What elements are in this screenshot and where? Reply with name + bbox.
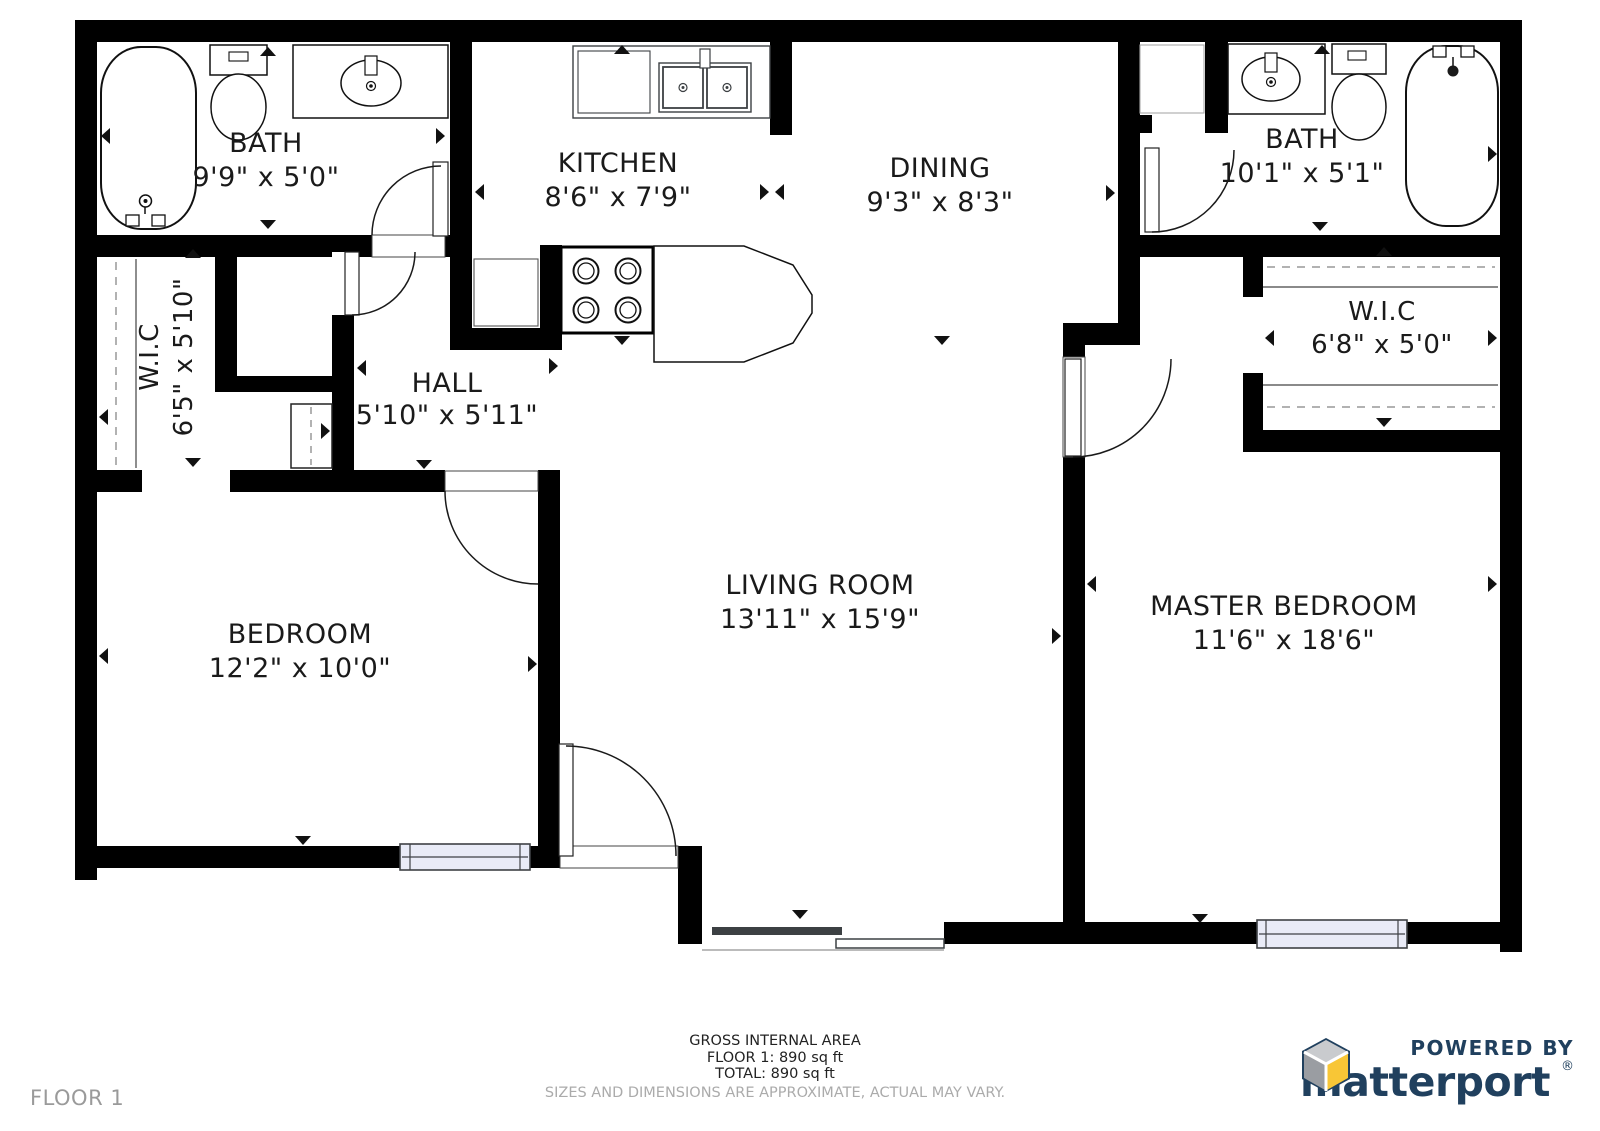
- floor-area: FLOOR 1: 890 sq ft: [475, 1050, 1075, 1067]
- wall-hall-bottom-b: [230, 470, 445, 492]
- floor-plan: BATH 9'9" x 5'0" KITCHEN 8'6" x 7'9" DIN…: [0, 0, 1600, 1131]
- room-dims-hall: 5'10" x 5'11": [356, 400, 538, 431]
- room-label-bedroom: BEDROOM: [228, 619, 372, 650]
- arrow-icon: [614, 336, 630, 345]
- floor-label: FLOOR 1: [30, 1086, 124, 1110]
- matterport-cube-icon: [1300, 1036, 1352, 1094]
- room-label-master: MASTER BEDROOM: [1150, 591, 1418, 622]
- door-hall-closet: [332, 252, 415, 315]
- arrow-icon: [1376, 418, 1392, 427]
- stove-icon: [561, 247, 653, 333]
- gross-internal-area: GROSS INTERNAL AREA FLOOR 1: 890 sq ft T…: [475, 1033, 1075, 1101]
- room-dims-master: 11'6" x 18'6": [1193, 625, 1375, 656]
- wall-vestibule-stub: [1140, 115, 1152, 133]
- sink-icon-2: [1228, 44, 1325, 114]
- wall-stove-pillar: [540, 245, 562, 350]
- disclaimer: SIZES AND DIMENSIONS ARE APPROXIMATE, AC…: [475, 1085, 1075, 1102]
- arrow-icon: [1192, 914, 1208, 923]
- powered-by-text: POWERED BY: [1410, 1036, 1574, 1060]
- arrow-icon: [760, 184, 769, 200]
- wall-hall-bottom-a: [75, 470, 142, 492]
- room-dims-bath2: 10'1" x 5'1": [1220, 158, 1385, 189]
- vestibule-closet: [1140, 45, 1204, 113]
- wall-tr-band: [1140, 235, 1500, 257]
- room-dims-wic-right: 6'8" x 5'0": [1311, 330, 1453, 360]
- wall-jog: [1063, 323, 1140, 345]
- arrow-icon: [1488, 576, 1497, 592]
- arrow-icon: [260, 220, 276, 229]
- wall-bottom-mid: [944, 922, 1257, 944]
- sink-icon: [293, 45, 448, 118]
- room-label-wic-right: W.I.C: [1348, 297, 1416, 327]
- kitchen-counter: [573, 46, 770, 118]
- wall-closet-bottom: [215, 376, 332, 392]
- arrow-icon: [528, 656, 537, 672]
- bathtub-icon: [101, 47, 196, 229]
- toilet-icon: [210, 45, 267, 140]
- room-dims-kitchen: 8'6" x 7'9": [544, 182, 691, 213]
- arrow-icon: [295, 836, 311, 845]
- wall-closet-right-b: [332, 315, 354, 470]
- room-dims-living: 13'11" x 15'9": [720, 604, 920, 635]
- window-master: [1257, 920, 1407, 948]
- wall-right: [1500, 20, 1522, 952]
- total-area: TOTAL: 890 sq ft: [475, 1066, 1075, 1083]
- arrow-icon: [934, 336, 950, 345]
- room-label-wic-left: W.I.C: [135, 323, 165, 391]
- arrow-icon: [549, 358, 558, 374]
- room-dims-dining: 9'3" x 8'3": [866, 187, 1013, 218]
- wall-kitchen-left-upper: [450, 20, 472, 257]
- arrow-icon: [185, 458, 201, 467]
- arrow-icon: [416, 460, 432, 469]
- arrow-icon: [436, 128, 445, 144]
- kitchen-pantry: [474, 259, 538, 326]
- wall-wicR-bottom: [1243, 430, 1500, 452]
- wall-closet-right-a: [332, 235, 354, 252]
- wall-left: [75, 20, 97, 880]
- room-label-dining: DINING: [889, 153, 990, 184]
- door-bath1: [372, 162, 448, 257]
- wall-bed-living-divider: [538, 470, 560, 846]
- arrow-icon: [1265, 330, 1274, 346]
- room-dims-bath1: 9'9" x 5'0": [192, 162, 339, 193]
- arrow-icon: [1087, 576, 1096, 592]
- arrow-icon: [1312, 222, 1328, 231]
- arrow-icon: [357, 360, 366, 376]
- closet-rod-wic-left: [116, 259, 136, 468]
- wall-living-master-b: [1063, 457, 1085, 930]
- room-label-kitchen: KITCHEN: [558, 148, 679, 179]
- wall-bath2-left: [1205, 42, 1228, 133]
- kitchen-peninsula: [654, 246, 812, 362]
- arrow-icon: [1106, 185, 1115, 201]
- arrow-icon: [1052, 628, 1061, 644]
- wall-wicL-right: [215, 235, 237, 392]
- registered-mark: ®: [1561, 1059, 1574, 1074]
- wall-living-master-a: [1063, 345, 1085, 357]
- arrow-icon: [792, 910, 808, 919]
- door-master: [1063, 357, 1171, 457]
- area-title: GROSS INTERNAL AREA: [475, 1033, 1075, 1050]
- sliding-door: [702, 918, 944, 950]
- hall-linen-closet: [291, 404, 332, 468]
- room-label-bath2: BATH: [1265, 124, 1339, 155]
- floorplan-page: BATH 9'9" x 5'0" KITCHEN 8'6" x 7'9" DIN…: [0, 0, 1600, 1131]
- wall-wicR-left-a: [1243, 257, 1263, 297]
- wall-kitchen-right: [770, 20, 792, 135]
- matterport-branding: POWERED BY matterport ®: [1300, 1036, 1574, 1103]
- wall-dining-right: [1118, 20, 1140, 345]
- wall-top: [75, 20, 1522, 42]
- arrow-icon: [99, 648, 108, 664]
- wall-bottom-right: [1407, 922, 1500, 944]
- room-label-living: LIVING ROOM: [725, 570, 914, 601]
- arrow-icon: [1488, 330, 1497, 346]
- door-entry: [559, 744, 678, 868]
- window-bedroom: [400, 844, 530, 870]
- room-label-hall: HALL: [412, 368, 483, 399]
- room-dims-wic-left: 6'5" x 5'10": [169, 278, 199, 437]
- arrow-icon: [775, 184, 784, 200]
- bathtub-icon-2: [1406, 46, 1498, 226]
- wall-bedroom-bottom: [75, 846, 400, 868]
- room-label-bath1: BATH: [229, 128, 303, 159]
- wall-entry-step: [678, 846, 702, 944]
- fixtures: [101, 44, 1498, 362]
- door-bedroom: [445, 471, 538, 584]
- room-dims-bedroom: 12'2" x 10'0": [209, 653, 391, 684]
- arrow-icon: [475, 184, 484, 200]
- arrow-icon: [99, 409, 108, 425]
- toilet-icon-2: [1332, 44, 1386, 140]
